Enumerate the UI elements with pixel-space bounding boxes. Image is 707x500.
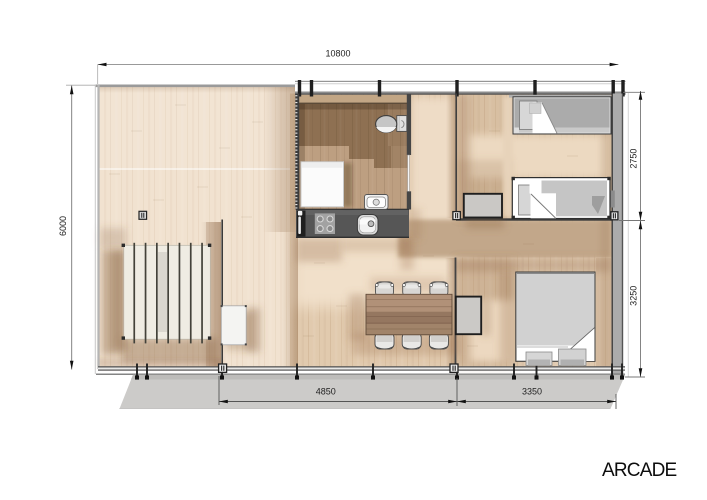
svg-text:10800: 10800 xyxy=(325,49,350,59)
svg-text:3350: 3350 xyxy=(522,386,542,396)
svg-text:6000: 6000 xyxy=(58,216,68,236)
svg-text:3250: 3250 xyxy=(629,286,639,306)
svg-text:2750: 2750 xyxy=(629,149,639,169)
svg-text:4850: 4850 xyxy=(316,386,336,396)
svg-text:ARCADE: ARCADE xyxy=(602,460,677,481)
